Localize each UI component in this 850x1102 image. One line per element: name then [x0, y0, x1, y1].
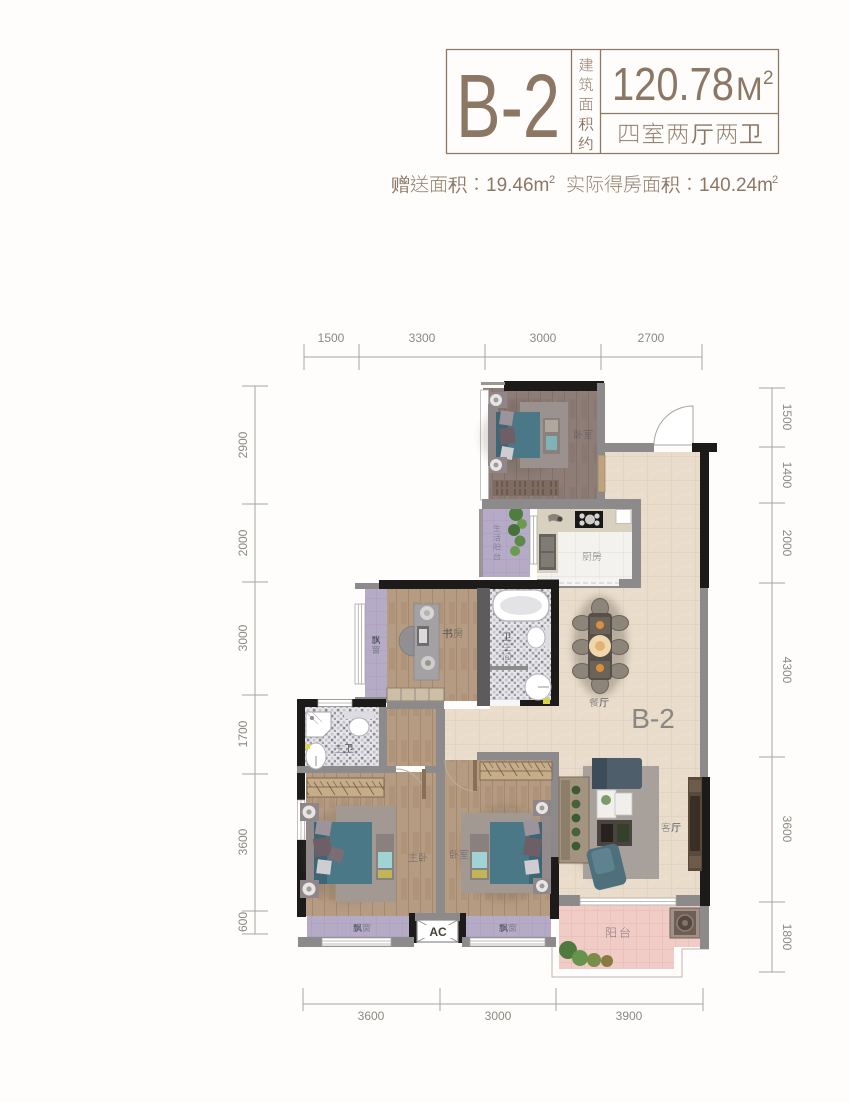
svg-text:4300: 4300: [780, 657, 794, 684]
svg-text:B-2: B-2: [456, 57, 560, 157]
svg-text:1800: 1800: [780, 924, 794, 951]
svg-text:3000: 3000: [485, 1009, 512, 1023]
svg-text:2000: 2000: [780, 530, 794, 557]
svg-text:AC: AC: [429, 925, 447, 939]
svg-text:3300: 3300: [409, 331, 436, 345]
svg-text:3600: 3600: [358, 1009, 385, 1023]
svg-text:2000: 2000: [236, 529, 250, 556]
svg-text:1700: 1700: [236, 720, 250, 747]
svg-text:3600: 3600: [780, 816, 794, 843]
svg-text:120.78: 120.78: [612, 58, 734, 110]
svg-text:B-2: B-2: [631, 703, 675, 734]
svg-text:19.46m: 19.46m: [486, 175, 549, 196]
svg-text:3600: 3600: [236, 828, 250, 855]
svg-text:2700: 2700: [638, 331, 665, 345]
svg-text:2: 2: [763, 68, 774, 89]
svg-text:2: 2: [549, 174, 555, 186]
svg-text:600: 600: [236, 912, 250, 932]
svg-text:2900: 2900: [236, 431, 250, 458]
svg-text:3900: 3900: [616, 1009, 643, 1023]
svg-text:140.24m: 140.24m: [699, 175, 773, 196]
svg-text:1400: 1400: [780, 462, 794, 489]
svg-text:3000: 3000: [530, 331, 557, 345]
svg-text:3000: 3000: [236, 624, 250, 651]
svg-text:M: M: [736, 71, 763, 107]
svg-text:1500: 1500: [318, 331, 345, 345]
svg-text:1500: 1500: [780, 404, 794, 431]
svg-text:2: 2: [772, 174, 778, 186]
